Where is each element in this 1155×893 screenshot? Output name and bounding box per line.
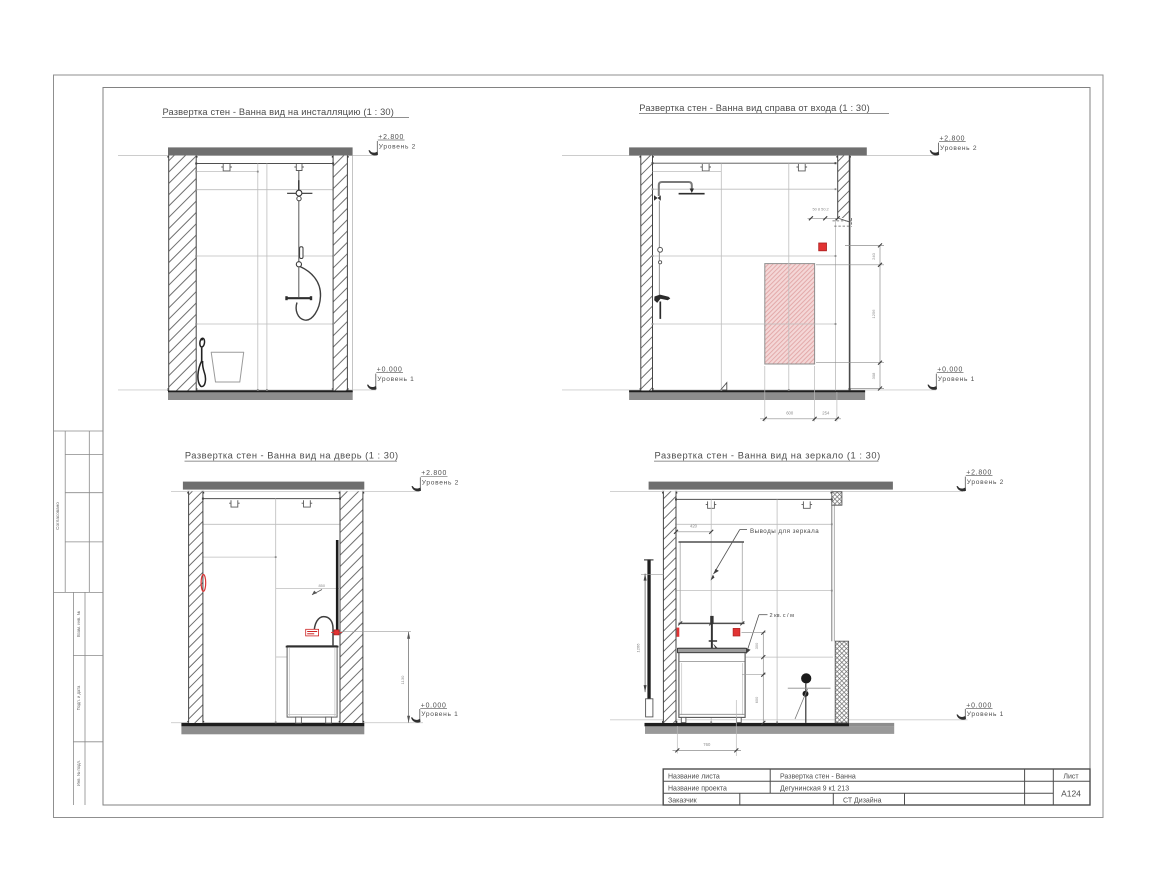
svg-text:Уровень 1: Уровень 1 xyxy=(421,711,458,718)
svg-text:Дегунинская 9 к1 213: Дегунинская 9 к1 213 xyxy=(780,786,849,793)
svg-text:Уровень 1: Уровень 1 xyxy=(377,376,414,383)
svg-text:Название проекта: Название проекта xyxy=(668,786,727,793)
svg-text:Подп. и дата: Подп. и дата xyxy=(76,685,81,710)
svg-text:Развертка стен - Ванна вид на: Развертка стен - Ванна вид на дверь (1 :… xyxy=(185,450,399,460)
svg-text:Развертка стен - Ванна: Развертка стен - Ванна xyxy=(780,773,856,780)
svg-text:Взам. инв. №: Взам. инв. № xyxy=(76,611,81,637)
svg-text:240: 240 xyxy=(871,252,876,259)
svg-text:А124: А124 xyxy=(1061,789,1081,799)
svg-text:Уровень 1: Уровень 1 xyxy=(938,376,975,383)
svg-text:Развертка стен - Ванна вид спр: Развертка стен - Ванна вид справа от вхо… xyxy=(639,103,870,113)
svg-text:Инв. № подл.: Инв. № подл. xyxy=(76,760,81,786)
svg-text:Развертка стен - Ванна вид на: Развертка стен - Ванна вид на инсталляци… xyxy=(163,107,394,117)
svg-text:Развертка стен - Ванна вид на: Развертка стен - Ванна вид на зеркало (1… xyxy=(655,450,881,460)
svg-text:Согласовано: Согласовано xyxy=(55,502,60,530)
svg-text:Уровень 2: Уровень 2 xyxy=(940,145,977,152)
svg-text:Лист: Лист xyxy=(1063,774,1079,781)
svg-text:1256: 1256 xyxy=(871,309,876,319)
svg-text:850: 850 xyxy=(319,583,326,588)
svg-text:50 8 50.2: 50 8 50.2 xyxy=(813,207,829,212)
svg-text:2 кв. с / м: 2 кв. с / м xyxy=(770,613,795,619)
svg-text:760: 760 xyxy=(703,742,711,747)
svg-text:600: 600 xyxy=(786,411,794,416)
svg-text:420: 420 xyxy=(690,524,698,529)
svg-text:Уровень 2: Уровень 2 xyxy=(422,480,459,487)
svg-text:Название листа: Название листа xyxy=(668,773,720,780)
svg-text:1130: 1130 xyxy=(400,675,405,684)
svg-text:300: 300 xyxy=(754,642,759,649)
svg-text:Выводы для зеркала: Выводы для зеркала xyxy=(750,528,819,535)
svg-text:Заказчик: Заказчик xyxy=(668,798,698,805)
svg-text:254: 254 xyxy=(822,411,830,416)
svg-text:600: 600 xyxy=(754,696,759,703)
svg-text:Уровень 2: Уровень 2 xyxy=(967,479,1004,486)
svg-text:1266: 1266 xyxy=(636,643,641,653)
svg-text:СТ Дизайна: СТ Дизайна xyxy=(843,797,882,805)
svg-text:Уровень 2: Уровень 2 xyxy=(379,143,416,150)
svg-text:Уровень 1: Уровень 1 xyxy=(967,711,1004,718)
svg-text:308: 308 xyxy=(871,372,876,379)
